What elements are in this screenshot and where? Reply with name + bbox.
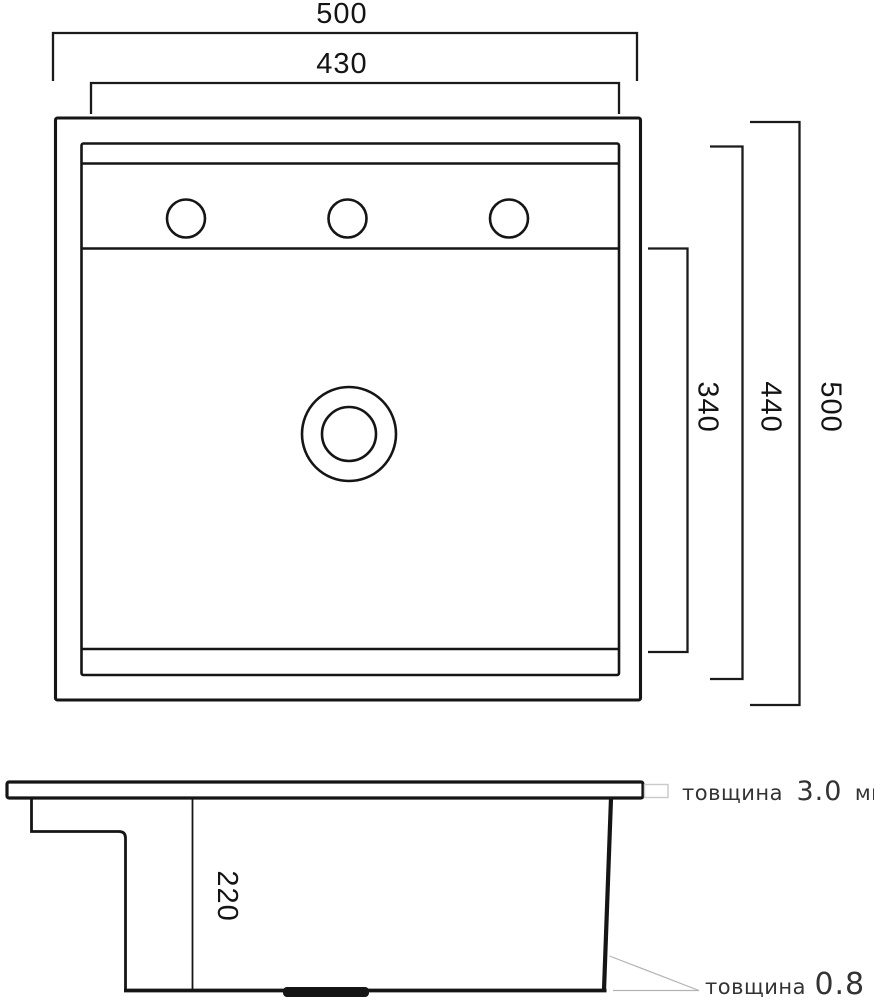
sink-technical-drawing: 500 430 340 440 500 220 — [0, 0, 874, 1000]
rim-thickness-value: 3.0 — [796, 776, 842, 807]
rim-thickness-indicator-box — [645, 785, 669, 798]
drain-inner-circle — [322, 407, 376, 461]
dim-label-height-inner: 440 — [755, 381, 787, 432]
wall-thickness-label: товщина — [705, 975, 806, 999]
faucet-hole-left — [167, 200, 205, 238]
dim-label-height-outer: 500 — [815, 381, 847, 432]
rim-flange-section — [7, 782, 643, 798]
dim-label-bowl-depth: 220 — [211, 870, 243, 921]
dim-bracket-width-inner — [91, 83, 619, 114]
rim-thickness-label: товщина — [682, 781, 783, 805]
top-view — [56, 118, 641, 700]
drain-stub-bottom — [283, 987, 369, 997]
faucet-hole-center — [329, 200, 367, 238]
technical-drawing-page: 500 430 340 440 500 220 — [0, 0, 874, 1000]
wall-thickness-value: 0.8 — [814, 967, 865, 1000]
left-step-profile — [32, 798, 126, 989]
dim-label-width-outer: 500 — [316, 0, 367, 30]
right-bowl-wall — [604, 799, 611, 991]
top-view-dimensions: 500 430 340 440 500 — [53, 0, 847, 705]
rim-thickness-callout: товщина 3.0 мм — [682, 776, 874, 807]
dim-bracket-bowl-inner-height — [648, 249, 688, 653]
side-view: 220 товщина 3.0 мм товщина 0.8 мм — [7, 776, 874, 1000]
wall-thickness-callout: товщина 0.8 мм — [705, 967, 874, 1000]
drain-outer-circle — [302, 387, 396, 481]
faucet-hole-right — [490, 200, 528, 238]
outer-rim-outline — [56, 118, 641, 700]
inner-bowl-outline — [82, 144, 620, 676]
dim-label-bowl-inner-height: 340 — [692, 381, 724, 432]
rim-thickness-unit: мм — [855, 781, 874, 805]
dim-label-width-inner: 430 — [316, 48, 367, 80]
wall-thickness-leader-upper — [610, 956, 700, 991]
